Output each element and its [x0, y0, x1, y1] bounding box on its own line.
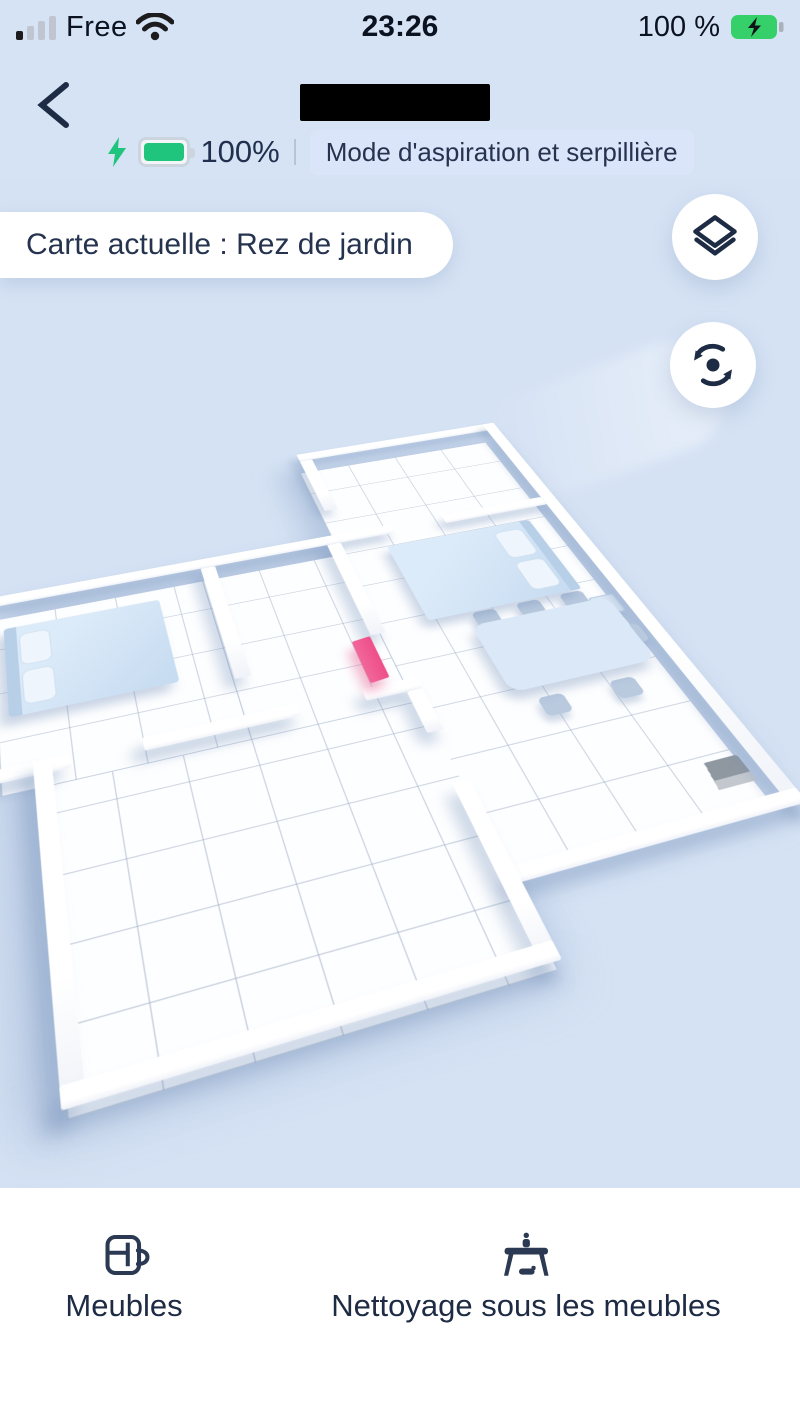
furniture-button[interactable]: Meubles: [65, 1228, 182, 1324]
current-map-pill: Carte actuelle : Rez de jardin: [0, 212, 453, 278]
charging-bolt-icon: [106, 136, 128, 168]
status-battery-percent: 100 %: [638, 11, 720, 44]
clean-under-furniture-button[interactable]: Nettoyage sous les meubles: [331, 1228, 720, 1324]
map-rotate-icon: [687, 339, 739, 391]
divider: [294, 139, 296, 165]
robot-battery-icon: [138, 137, 190, 167]
chair: [537, 693, 574, 717]
status-bar: Free 23:26 100 %: [0, 0, 800, 54]
current-map-label: Carte actuelle : Rez de jardin: [26, 228, 413, 262]
map-layers-button[interactable]: [672, 194, 758, 280]
map-rotate-button[interactable]: [670, 322, 756, 408]
floor-plan-3d: [0, 431, 800, 1171]
header: 100% Mode d'aspiration et serpillière: [0, 54, 800, 178]
back-icon: [34, 81, 74, 129]
map-layers-icon: [689, 211, 741, 263]
mode-badge: Mode d'aspiration et serpillière: [310, 130, 694, 175]
device-name-redacted: [300, 84, 490, 121]
robot-battery-percent: 100%: [200, 134, 279, 170]
back-button[interactable]: [30, 80, 78, 132]
furniture-button-label: Meubles: [65, 1288, 182, 1324]
clean-under-furniture-icon: [497, 1228, 555, 1282]
battery-charging-icon: [730, 13, 784, 41]
bottom-bar: Meubles Nettoyage sous les meubles: [0, 1188, 800, 1422]
clean-under-furniture-label: Nettoyage sous les meubles: [331, 1288, 720, 1324]
map-canvas[interactable]: Carte actuelle : Rez de jardin: [0, 178, 800, 1188]
furniture-icon: [97, 1228, 151, 1282]
device-status-row: 100% Mode d'aspiration et serpillière: [0, 130, 800, 175]
screen: Free 23:26 100 %: [0, 0, 800, 1422]
